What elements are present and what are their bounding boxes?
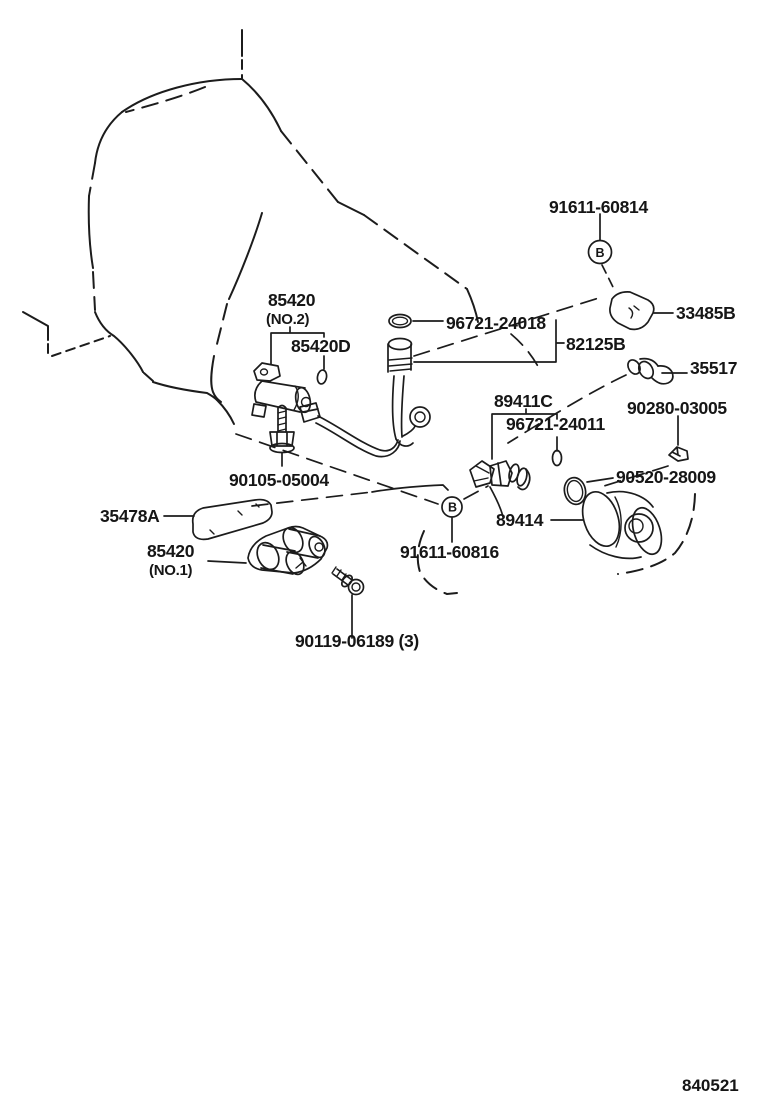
part-label-90119-06189: 90119-06189 (3) <box>295 631 419 651</box>
part-label-35517: 35517 <box>690 358 737 378</box>
part-label-90105-05004: 90105-05004 <box>229 470 329 490</box>
part-label-89411c: 89411C <box>494 391 553 411</box>
transmission-case-outline <box>23 30 478 424</box>
bracket-33485b-drawing <box>610 292 673 329</box>
part-label-90520-28009: 90520-28009 <box>616 467 716 487</box>
oring-90520-28009-drawing <box>562 476 613 507</box>
part-label-82125b: 82125B <box>566 334 626 354</box>
bolt-90105-05004-drawing <box>270 406 294 467</box>
figure-code: 840521 <box>682 1076 739 1095</box>
part-label-85420-no1: 85420 <box>147 541 195 561</box>
grommet-b-lower: B <box>442 497 462 542</box>
callout-marker-b-upper: B <box>596 246 605 260</box>
bolt-90119-06189-drawing <box>332 567 364 638</box>
part-label-85420-no1-sub: (NO.1) <box>149 562 193 579</box>
part-label-85420-no2-sub: (NO.2) <box>266 311 310 328</box>
part-label-85420-no2: 85420 <box>268 290 316 310</box>
part-label-90280-03005: 90280-03005 <box>627 398 727 418</box>
parts-diagram-canvas: B <box>0 0 760 1112</box>
clamp-35517-drawing <box>625 358 687 384</box>
part-label-89414: 89414 <box>496 510 544 530</box>
parts-diagram-page: B <box>0 0 760 1112</box>
part-label-33485b: 33485B <box>676 303 736 323</box>
part-label-35478a: 35478A <box>100 506 160 526</box>
part-label-91611-60816: 91611-60816 <box>400 542 499 562</box>
stud-90280-03005-drawing <box>669 416 688 461</box>
part-label-85420d: 85420D <box>291 336 351 356</box>
part-labels: 91611-60814 33485B 96721-24018 85420 (NO… <box>100 197 737 651</box>
part-label-91611-60814: 91611-60814 <box>549 197 648 217</box>
part-label-96721-24011: 96721-24011 <box>506 414 605 434</box>
sleeve-89414-drawing <box>551 487 667 558</box>
part-label-96721-24018: 96721-24018 <box>446 313 546 333</box>
grommet-b-upper: B <box>589 214 615 289</box>
solenoid-85420-no1-drawing <box>208 524 328 577</box>
callout-marker-b-lower: B <box>448 501 457 515</box>
